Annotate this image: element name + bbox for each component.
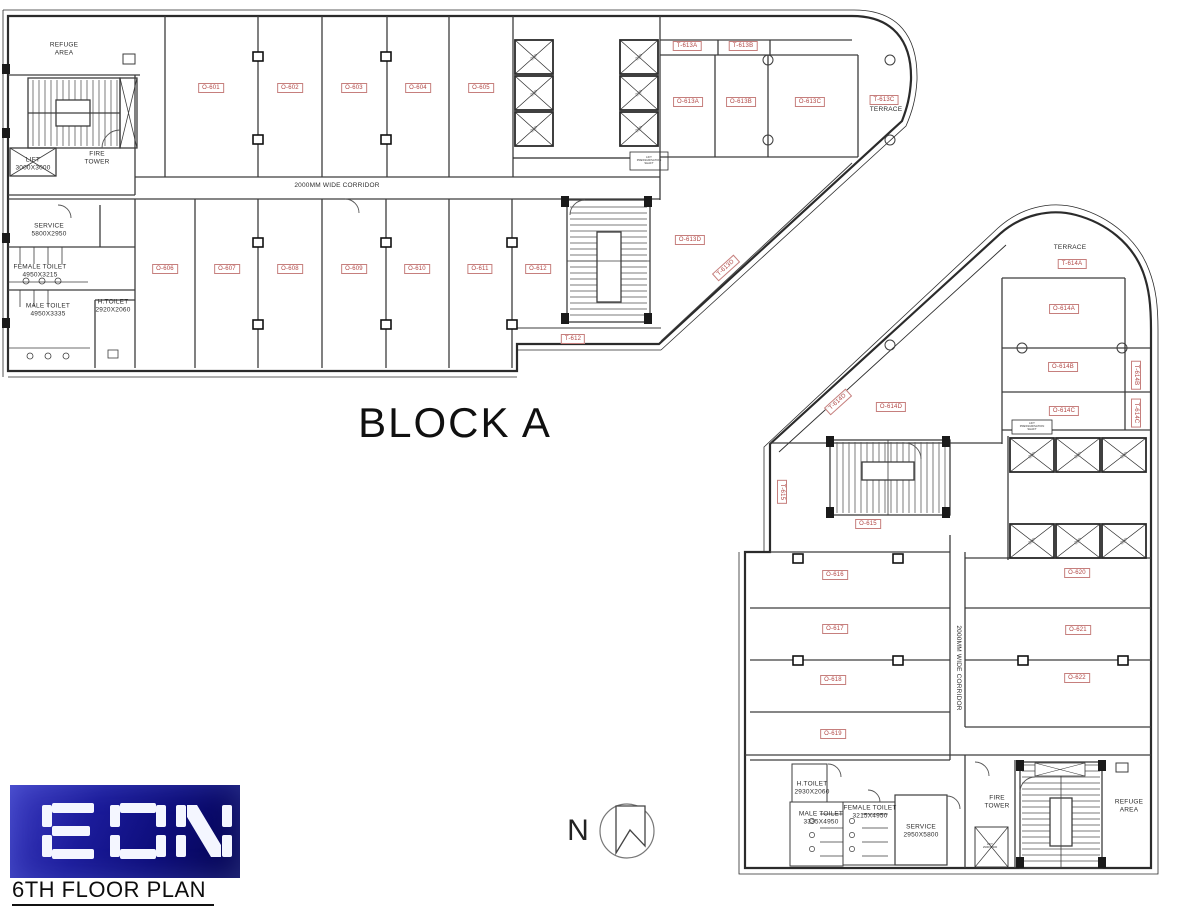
lift-note-b: LIFT PRESSURISATION SHAFT — [1020, 422, 1045, 432]
plan-title: 6TH FLOOR PLAN — [12, 877, 214, 906]
lift-small-label-b: LIFT 2900X2900 — [983, 843, 997, 849]
eon-logo: EON — [10, 785, 240, 878]
block-a-lift-bank — [513, 40, 668, 170]
lift-note-a: LIFT PRESSURISATION SHAFT — [637, 156, 662, 166]
block-a-outline — [3, 10, 917, 377]
eon-logo-segments — [10, 785, 240, 878]
wall-columns — [2, 52, 1128, 868]
block-a-title: BLOCK A — [358, 399, 552, 447]
north-arrow — [600, 804, 654, 858]
north-label: N — [567, 814, 589, 848]
block-b-partitions — [745, 278, 1151, 868]
block-a-partitions — [8, 16, 852, 368]
floor-plan-drawing — [0, 0, 1200, 900]
